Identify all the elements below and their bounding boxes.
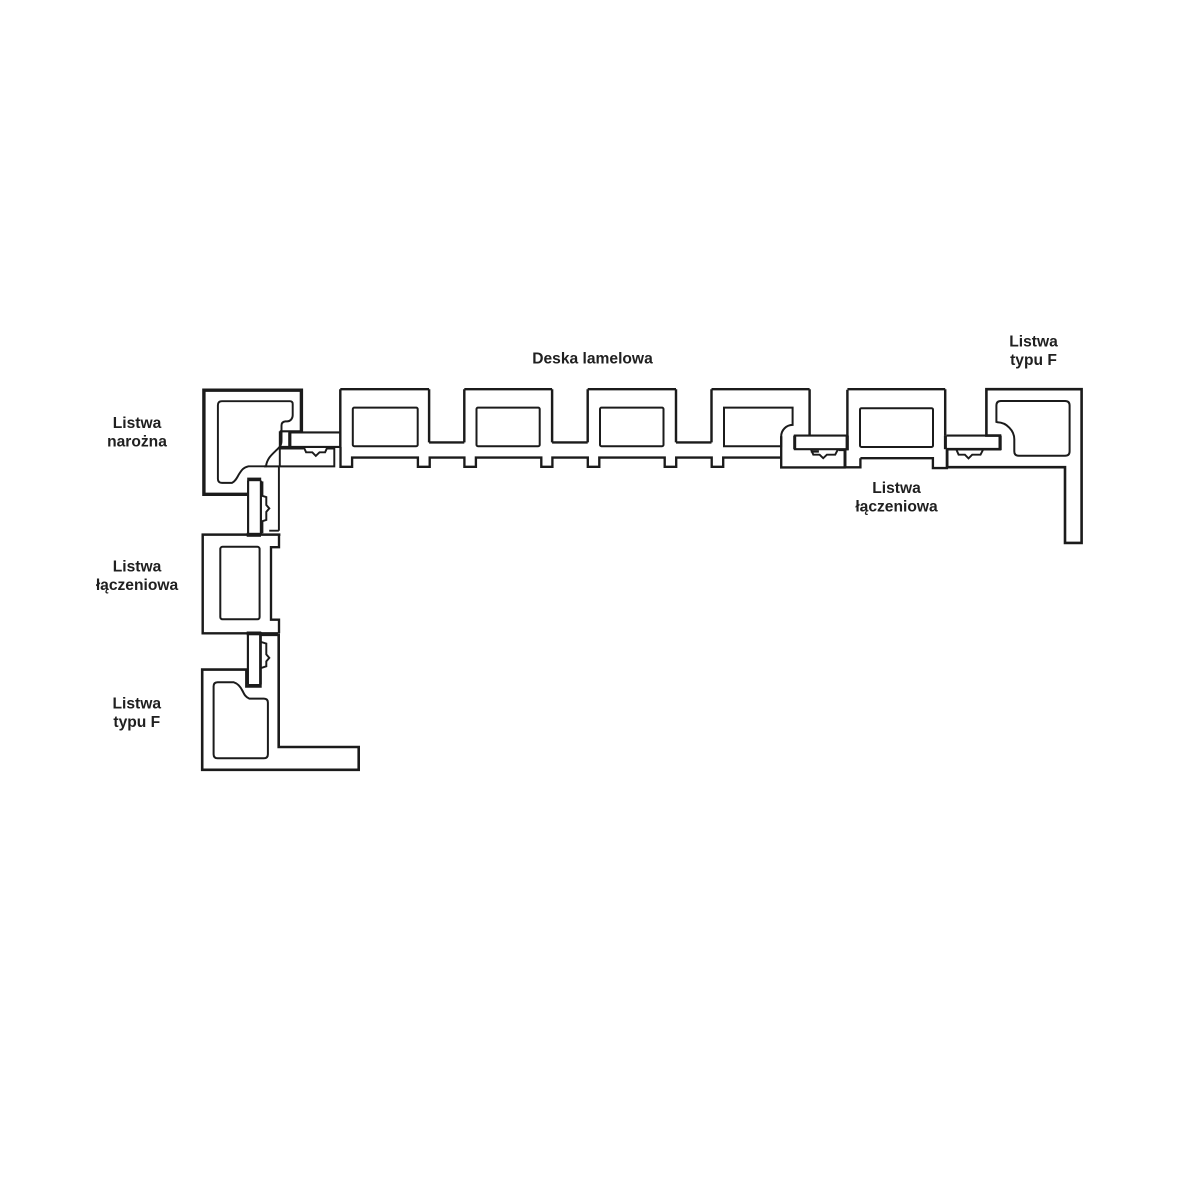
svg-text:Listwa: Listwa [113,559,162,576]
svg-text:narożna: narożna [107,433,167,450]
svg-text:Listwa: Listwa [872,480,921,497]
svg-text:Listwa: Listwa [113,415,162,432]
svg-text:Listwa: Listwa [1009,334,1058,351]
svg-text:typu F: typu F [1010,352,1057,369]
svg-text:łączeniowa: łączeniowa [855,498,938,515]
svg-text:typu F: typu F [113,714,160,731]
svg-text:Deska lamelowa: Deska lamelowa [532,351,653,368]
svg-text:Listwa: Listwa [113,696,162,713]
svg-text:łączeniowa: łączeniowa [96,577,179,594]
